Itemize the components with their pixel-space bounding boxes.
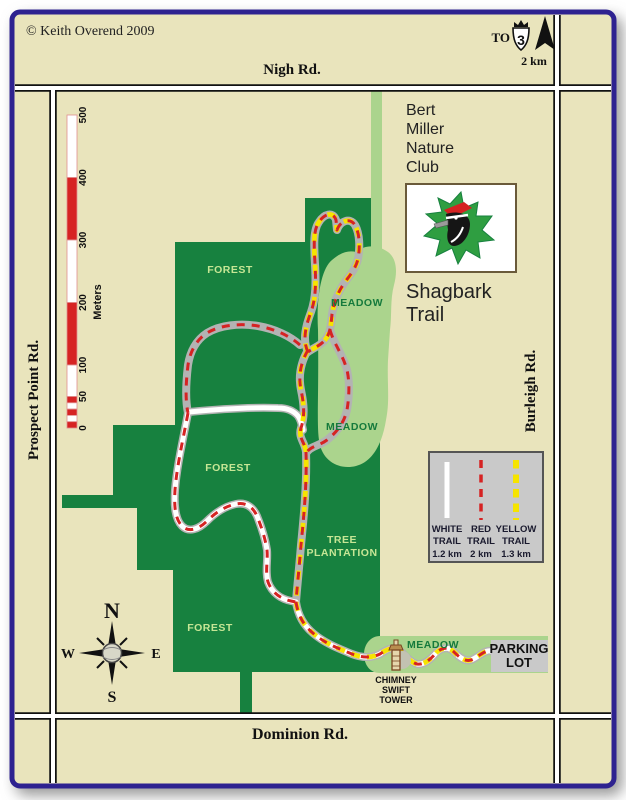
road-label-nigh: Nigh Rd. (263, 62, 321, 78)
plantation-label-line1: TREE (327, 534, 357, 546)
meadow-corridor (371, 90, 382, 258)
hedgerow-south (240, 670, 252, 714)
meadow-label-1: MEADOW (331, 297, 383, 309)
forest-label-2: FOREST (205, 462, 251, 474)
forest-label-1: FOREST (207, 264, 253, 276)
trail-map: FOREST FOREST FOREST MEADOW MEADOW MEADO… (0, 0, 626, 800)
trail-title-line1: Shagbark (406, 281, 493, 303)
meadow-label-3: MEADOW (407, 639, 459, 651)
highway-to-label: TO (491, 30, 510, 45)
legend-red-name-line1: RED (471, 524, 491, 535)
club-logo (406, 184, 516, 272)
club-name-line1: Bert (406, 102, 436, 119)
legend-yellow-distance: 1.3 km (501, 549, 531, 560)
compass-south-label: S (108, 689, 117, 706)
tower-label-line2: SWIFT (382, 685, 410, 695)
road-label-prospect: Prospect Point Rd. (26, 340, 42, 460)
legend-white-distance: 1.2 km (432, 549, 462, 560)
scale-tick-300: 300 (78, 231, 89, 248)
compass-north-label: N (104, 598, 120, 623)
plantation-label-line2: PLANTATION (306, 547, 377, 559)
road-label-burleigh: Burleigh Rd. (523, 349, 539, 432)
road-label-dominion: Dominion Rd. (252, 726, 348, 743)
highway-number: 3 (517, 32, 525, 48)
trail-title-line2: Trail (406, 304, 444, 326)
tower-label-line3: TOWER (379, 695, 413, 705)
parking-label-line2: LOT (506, 655, 532, 670)
club-name-line4: Club (406, 159, 439, 176)
legend-red-name-line2: TRAIL (467, 536, 495, 547)
club-name-line3: Nature (406, 140, 454, 157)
highway-distance: 2 km (521, 54, 547, 68)
tower-label-line1: CHIMNEY (375, 675, 417, 685)
legend-white-name-line2: TRAIL (433, 536, 461, 547)
legend-yellow-name-line1: YELLOW (496, 524, 537, 535)
scale-tick-500: 500 (78, 106, 89, 123)
scale-tick-200: 200 (78, 294, 89, 311)
scale-tick-100: 100 (78, 356, 89, 373)
parking-lot: PARKING LOT (490, 640, 549, 672)
forest-label-3: FOREST (187, 622, 233, 634)
scale-unit-label: Meters (92, 284, 104, 319)
legend-white-name-line1: WHITE (432, 524, 463, 535)
hedgerow-west (62, 495, 115, 508)
legend-red-distance: 2 km (470, 549, 492, 560)
compass-east-label: E (151, 647, 160, 662)
scale-tick-0: 0 (78, 425, 89, 431)
copyright-text: © Keith Overend 2009 (26, 24, 154, 39)
legend-yellow-name-line2: TRAIL (502, 536, 530, 547)
meadow-label-2: MEADOW (326, 421, 378, 433)
scale-bar-segments (67, 115, 77, 428)
scale-tick-400: 400 (78, 169, 89, 186)
scale-tick-50: 50 (78, 391, 89, 403)
compass-west-label: W (61, 647, 75, 662)
parking-label-line1: PARKING (490, 641, 549, 656)
club-name-line2: Miller (406, 121, 445, 138)
trail-legend: WHITE TRAIL 1.2 km RED TRAIL 2 km YELLOW… (429, 452, 543, 562)
